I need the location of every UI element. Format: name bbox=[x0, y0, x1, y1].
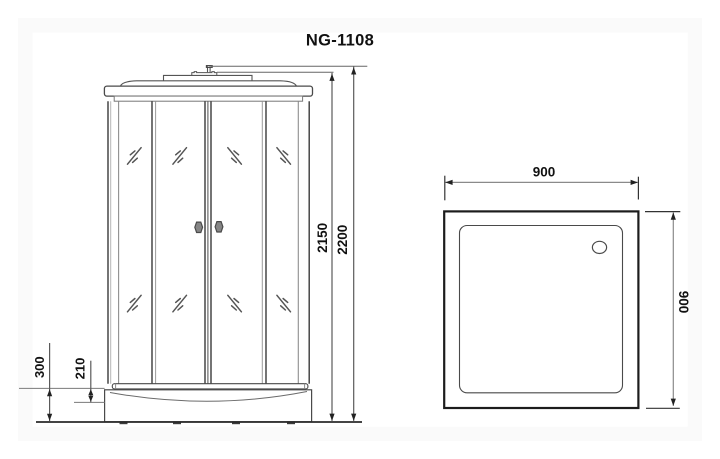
svg-text:2150: 2150 bbox=[315, 223, 330, 253]
svg-text:900: 900 bbox=[676, 291, 691, 314]
svg-text:210: 210 bbox=[73, 358, 88, 380]
svg-text:900: 900 bbox=[533, 165, 556, 180]
svg-text:NG-1108: NG-1108 bbox=[306, 32, 374, 50]
svg-text:300: 300 bbox=[32, 356, 47, 378]
svg-text:2200: 2200 bbox=[335, 225, 350, 255]
